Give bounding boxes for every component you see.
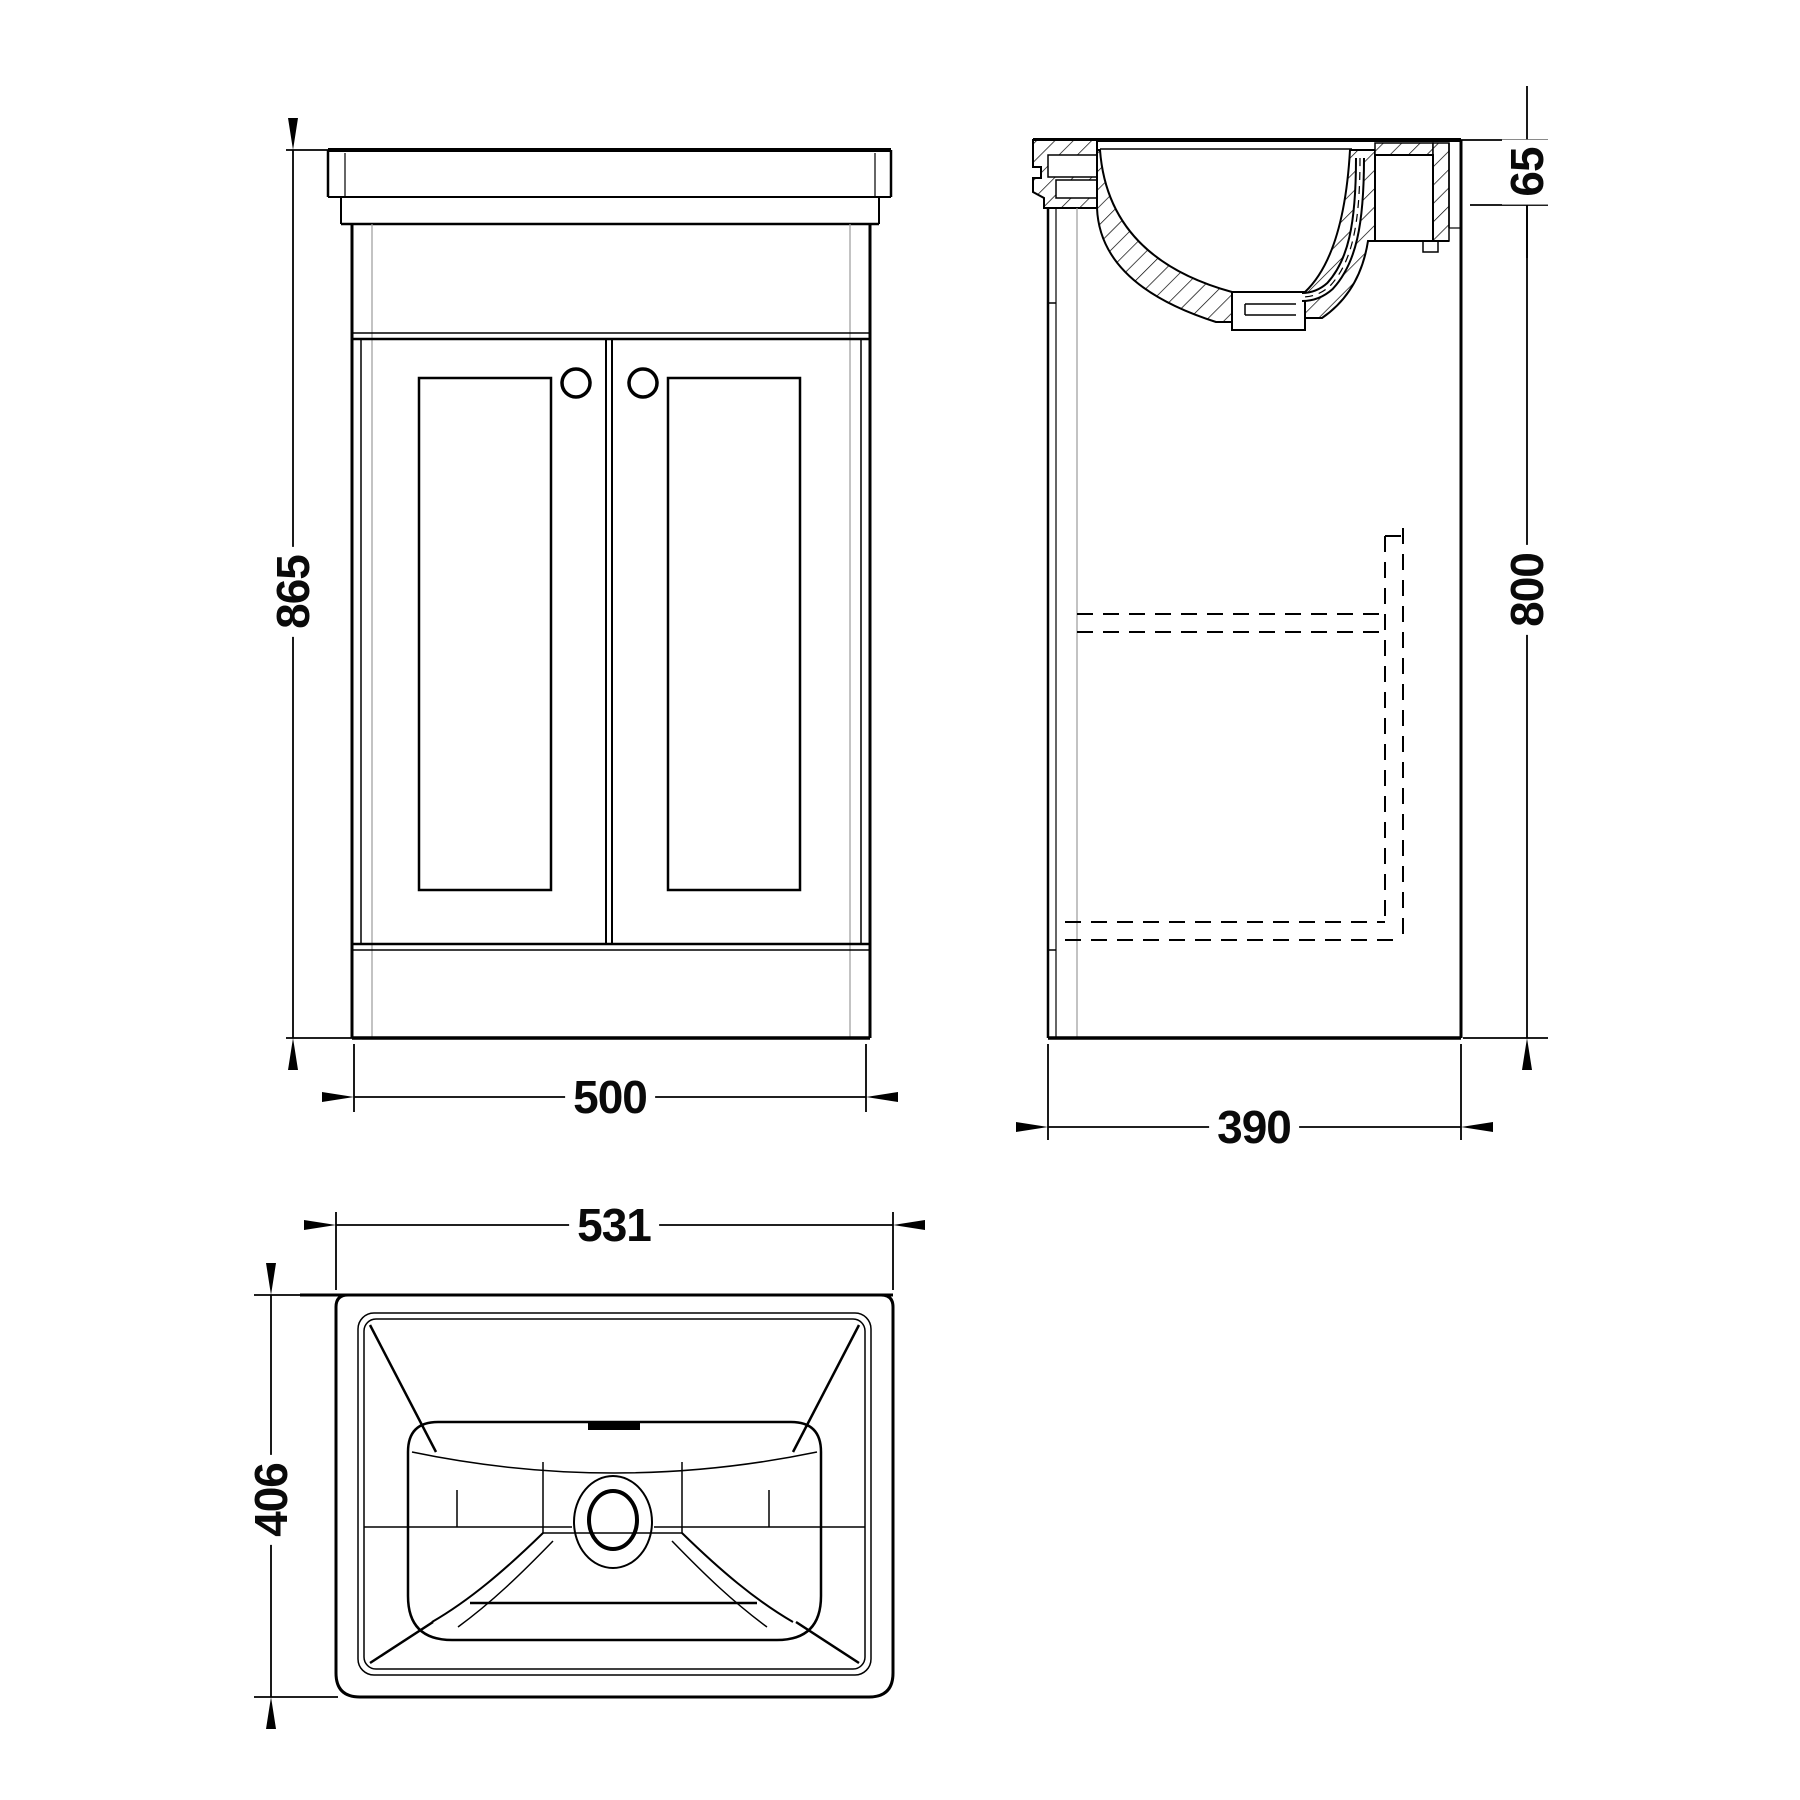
- dim-label-front-width: 500: [565, 1072, 655, 1122]
- side-view: [1033, 140, 1461, 1038]
- dimension-lines: [254, 86, 1548, 1697]
- door-knob-right: [629, 369, 657, 397]
- tap-deck-void: [1375, 155, 1433, 241]
- drain-hole: [589, 1491, 637, 1549]
- plan-view: [300, 1295, 893, 1697]
- door-panel-right: [668, 378, 800, 890]
- dim-label-side-height: 800: [1502, 545, 1552, 635]
- dim-label-side-depth: 390: [1209, 1102, 1299, 1152]
- door-knob-left: [562, 369, 590, 397]
- bowl-section-left: [1097, 150, 1232, 322]
- hidden-lines: [1065, 528, 1403, 940]
- dim-label-plan-depth: 406: [246, 1455, 296, 1545]
- dim-label-basin-lip: 65: [1502, 139, 1552, 204]
- technical-drawing-page: 865 500 65 800 390 531 406: [0, 0, 1800, 1800]
- drain-boss-section: [1232, 292, 1305, 330]
- door-panel-left: [419, 378, 551, 890]
- dim-label-front-height: 865: [268, 547, 318, 637]
- dim-label-plan-width: 531: [569, 1200, 659, 1250]
- overflow-slot: [588, 1421, 640, 1430]
- front-view: [328, 150, 891, 1038]
- bowl-outline: [408, 1422, 821, 1640]
